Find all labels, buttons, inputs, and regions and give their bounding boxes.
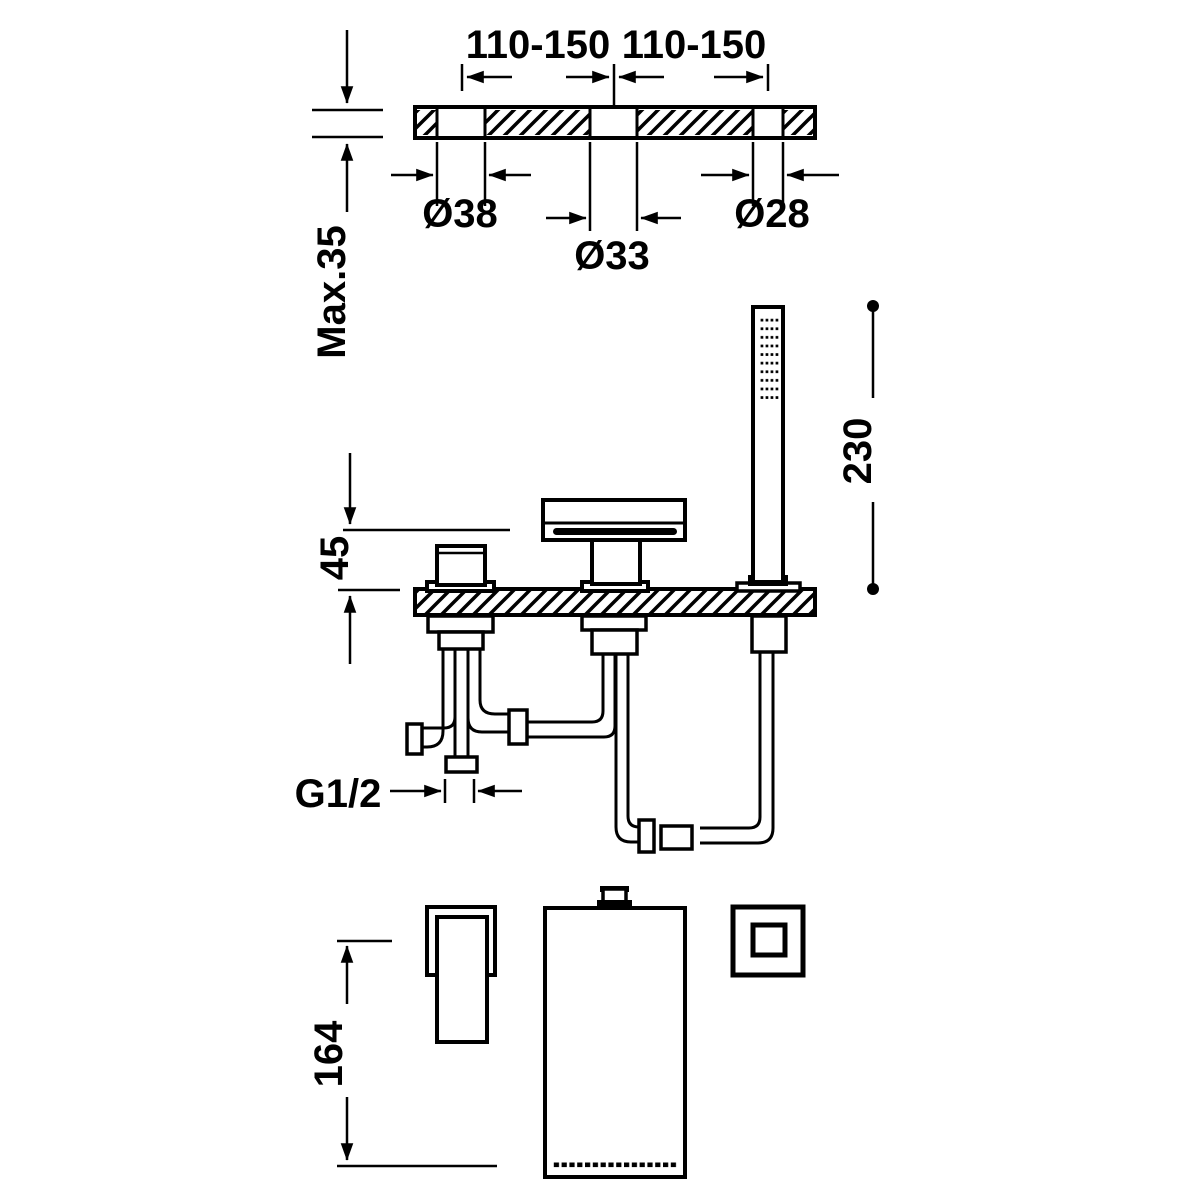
- inlet-fitting-right: [509, 710, 527, 744]
- dim-label-shower-height: 230: [836, 418, 880, 485]
- hand-shower-top-view: [733, 907, 803, 975]
- dim-label-thread-size: G1/2: [295, 772, 382, 816]
- dim-label-span-left: 110-150: [466, 23, 611, 67]
- spray-row-dots: [553, 1161, 677, 1168]
- handle-fixture: [427, 546, 494, 591]
- dim-label-dia-right: Ø28: [734, 192, 810, 236]
- hand-shower-side-view: [427, 907, 495, 1042]
- shower-handle-side: [437, 917, 487, 1042]
- shower-spray-outline-top: [753, 925, 785, 955]
- dim-label-max-depth: Max.35: [310, 225, 354, 358]
- dim-label-handle-length: 164: [307, 1020, 351, 1087]
- hose-fitting-horizontal: [661, 826, 692, 849]
- shower-body-front: [545, 908, 685, 1177]
- dim-label-dia-center: Ø33: [574, 234, 650, 278]
- deck-cross-section: [415, 107, 815, 138]
- inlet-fitting-left: [407, 724, 422, 754]
- hose-fitting-vertical: [639, 820, 654, 852]
- hatch-segment: [783, 110, 814, 135]
- spout-outlet-slot: [553, 528, 677, 535]
- dim-label-spout-height: 45: [313, 536, 357, 581]
- spray-face-dots: [759, 317, 779, 404]
- hatch-segment: [417, 591, 813, 613]
- technical-drawing: 110-150 110-150: [0, 0, 1200, 1200]
- hatch-segment: [637, 110, 753, 135]
- hatch-segment: [416, 110, 437, 135]
- hand-shower-front-view: [545, 886, 685, 1177]
- dim-label-span-right: 110-150: [622, 23, 767, 67]
- thread-fitting-bottom: [446, 757, 477, 772]
- hatch-segment: [485, 110, 590, 135]
- dim-label-dia-left: Ø38: [422, 192, 498, 236]
